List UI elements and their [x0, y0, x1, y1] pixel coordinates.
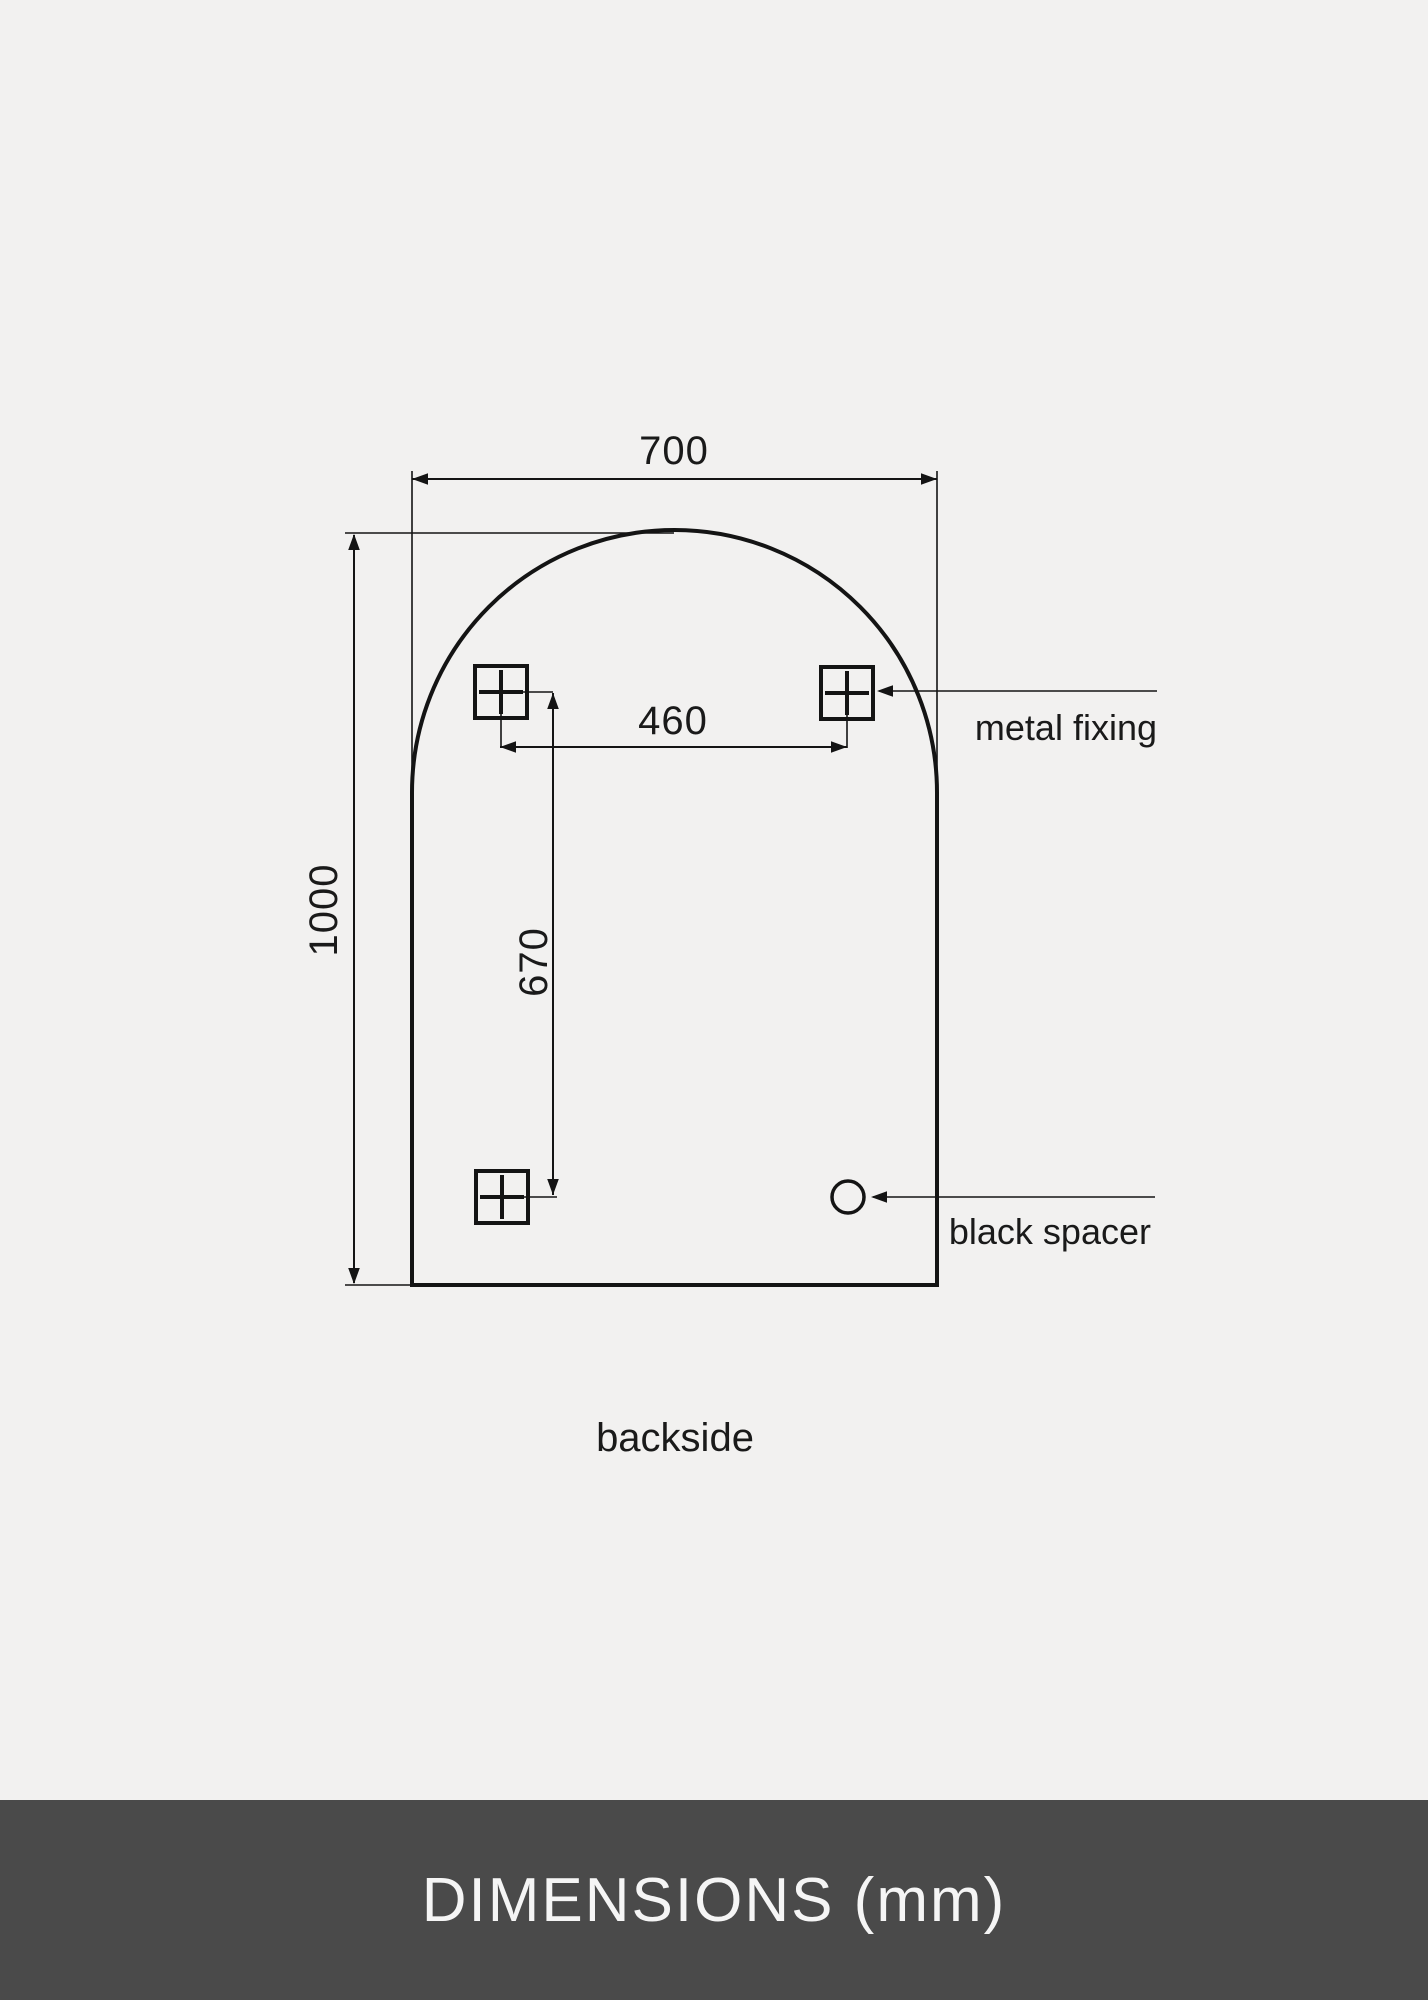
- height-dimension-value: 1000: [302, 864, 346, 957]
- dimension-drawing-page: 700 1000 460: [0, 0, 1428, 2000]
- metal-fixing-marker-bottom-left: [476, 1171, 528, 1223]
- black-spacer-marker: [832, 1181, 864, 1213]
- footer-title: DIMENSIONS (mm): [422, 1865, 1007, 1936]
- arrow-up-icon: [348, 534, 360, 550]
- arrow-down-icon: [348, 1268, 360, 1284]
- black-spacer-label: black spacer: [949, 1211, 1151, 1252]
- footer-bar: DIMENSIONS (mm): [0, 1800, 1428, 2000]
- arrow-left-icon: [500, 741, 516, 753]
- fixing-drop-value: 670: [512, 927, 556, 997]
- fixing-spacing-value: 460: [638, 699, 708, 743]
- metal-fixing-marker-top-right: [821, 667, 873, 719]
- metal-fixing-label: metal fixing: [975, 707, 1157, 748]
- arrow-left-icon: [871, 1191, 887, 1203]
- backside-caption: backside: [596, 1416, 754, 1460]
- arrow-right-icon: [831, 741, 847, 753]
- mirror-technical-drawing: 700 1000 460: [0, 0, 1428, 1800]
- width-dimension-value: 700: [639, 429, 709, 473]
- metal-fixing-marker-top-left: [475, 666, 527, 718]
- arrow-left-icon: [412, 473, 428, 485]
- arrow-down-icon: [547, 1179, 559, 1195]
- arrow-left-icon: [877, 685, 893, 697]
- arrow-up-icon: [547, 693, 559, 709]
- arrow-right-icon: [921, 473, 937, 485]
